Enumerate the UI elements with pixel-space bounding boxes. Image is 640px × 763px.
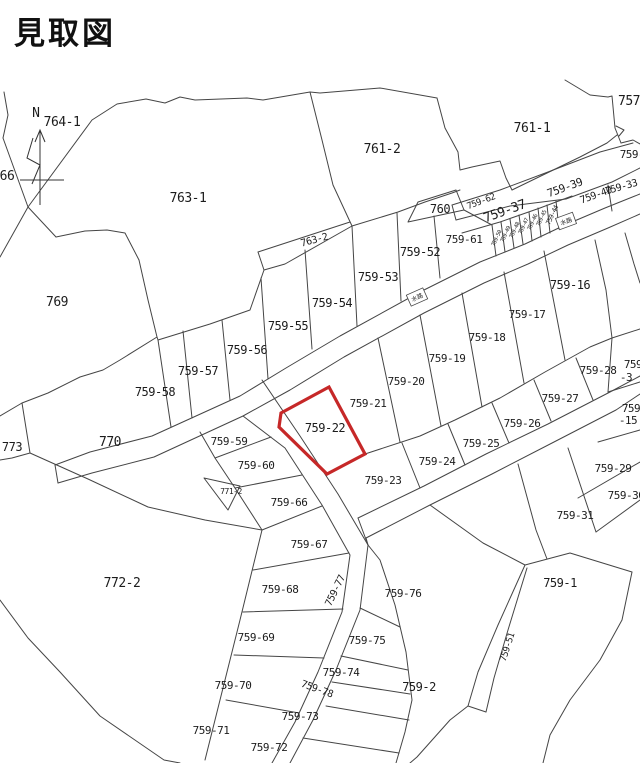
- boundary-line: [612, 329, 640, 338]
- parcel-label-769: 769: [46, 295, 68, 310]
- parcel-label--15: -15: [619, 414, 637, 427]
- boundary-line: [0, 453, 30, 460]
- parcel-label-761-2: 761-2: [364, 142, 401, 157]
- parcel-label-759-56: 759-56: [227, 343, 268, 357]
- cadastral-sketch-map: 見取図 N764-166763-1761-2761-1757759-4759-3…: [0, 0, 640, 763]
- parcel-label-759-66: 759-66: [271, 496, 308, 509]
- boundary-line: [437, 98, 512, 190]
- parcel-label-771-2: 771-2: [220, 487, 242, 496]
- parcel-label-759-59: 759-59: [211, 435, 248, 448]
- parcel-label-759-16: 759-16: [550, 278, 591, 292]
- parcel-label-759-52: 759-52: [400, 245, 441, 259]
- boundary-line: [598, 430, 640, 442]
- boundary-line: [253, 553, 349, 570]
- boundary-line: [262, 380, 368, 763]
- parcel-label-759-33: 759-33: [604, 178, 639, 198]
- parcel-label-759-51: 759-51: [499, 632, 518, 663]
- parcel-label-66: 66: [0, 169, 14, 184]
- boundary-line: [378, 338, 400, 442]
- boundary-line: [0, 600, 180, 763]
- boundary-line: [3, 138, 56, 237]
- parcel-label-759-25: 759-25: [463, 437, 500, 450]
- parcel-label-759-17: 759-17: [509, 308, 546, 321]
- parcel-label-759-30: 759-30: [608, 489, 640, 502]
- parcel-label-759-77: 759-77: [324, 573, 349, 608]
- parcel-label-759-76: 759-76: [385, 587, 422, 600]
- boundary-line: [234, 655, 324, 658]
- boundary-line: [55, 465, 58, 483]
- boundary-line: [158, 340, 171, 427]
- boundary-line: [243, 609, 343, 612]
- boundary-line: [22, 403, 30, 453]
- parcel-label-759-73: 759-73: [282, 710, 319, 723]
- parcel-label-759-19: 759-19: [429, 352, 466, 365]
- boundary-line: [368, 545, 412, 763]
- boundary-line: [525, 553, 632, 572]
- parcel-label-763-1: 763-1: [170, 191, 207, 206]
- parcel-label-759-27: 759-27: [542, 392, 579, 405]
- boundary-line: [504, 272, 524, 383]
- parcel-label-772-2: 772-2: [104, 576, 141, 591]
- parcel-label-759-72: 759-72: [251, 741, 288, 754]
- boundary-line: [235, 475, 302, 488]
- parcel-label-759-4: 759-4: [620, 148, 640, 161]
- map-canvas: N764-166763-1761-2761-1757759-4759-39759…: [0, 0, 640, 763]
- boundary-line: [518, 464, 547, 559]
- boundary-line: [544, 251, 565, 360]
- parcel-label-760: 760: [430, 202, 450, 216]
- parcel-label-759-2: 759-2: [402, 680, 436, 694]
- parcel-label-759-61: 759-61: [446, 233, 483, 246]
- parcel-label-759-26: 759-26: [504, 417, 541, 430]
- parcel-label-759-69: 759-69: [238, 631, 275, 644]
- boundary-line: [258, 252, 264, 270]
- boundary-line: [360, 608, 400, 627]
- boundary-line: [410, 565, 525, 763]
- boundary-line: [352, 226, 357, 326]
- north-label: N: [32, 106, 40, 121]
- parcel-label-759-24: 759-24: [419, 455, 457, 468]
- boundary-line: [596, 500, 640, 532]
- boundary-line: [332, 682, 410, 694]
- parcel-label-759-1: 759-1: [543, 576, 577, 590]
- boundary-line: [420, 315, 441, 426]
- parcel-label-759-21: 759-21: [350, 397, 387, 410]
- parcel-label-759-74: 759-74: [323, 666, 361, 679]
- parcel-label-761-1: 761-1: [514, 121, 551, 136]
- parcel-label-773: 773: [2, 440, 22, 454]
- parcel-label-764-1: 764-1: [44, 115, 81, 130]
- road-marker: 水路: [555, 212, 576, 229]
- parcel-label-759-23: 759-23: [365, 474, 402, 487]
- parcel-label-757: 757: [618, 94, 640, 109]
- parcel-label-759-71: 759-71: [193, 724, 230, 737]
- boundary-line: [402, 443, 420, 488]
- boundary-line: [430, 505, 525, 565]
- boundary-line: [303, 738, 399, 753]
- boundary-line: [0, 337, 157, 416]
- parcel-label-770: 770: [99, 435, 121, 450]
- parcel-label-759: 759: [624, 358, 640, 371]
- boundary-line: [310, 92, 352, 226]
- parcel-label-759-67: 759-67: [291, 538, 328, 551]
- boundary-line: [595, 240, 612, 338]
- parcel-label-759-22: 759-22: [305, 421, 346, 435]
- boundary-line: [3, 92, 8, 138]
- parcel-label-759-29: 759-29: [595, 462, 632, 475]
- parcel-label-759-31: 759-31: [557, 509, 594, 522]
- parcel-label-759-75: 759-75: [349, 634, 386, 647]
- boundary-line: [158, 190, 460, 340]
- parcel-label--3: -3: [620, 371, 632, 384]
- page-title: 見取図: [14, 8, 116, 53]
- boundary-line: [565, 80, 621, 143]
- parcel-label-759-54: 759-54: [312, 296, 353, 310]
- parcel-label-759-28: 759-28: [580, 364, 617, 377]
- boundary-line: [326, 706, 409, 720]
- parcel-label-759-60: 759-60: [238, 459, 275, 472]
- parcel-label-759-70: 759-70: [215, 679, 252, 692]
- boundary-line: [0, 88, 437, 257]
- boundary-line: [468, 706, 486, 712]
- north-arrow-icon: [27, 138, 40, 184]
- road-marker: 水路: [406, 288, 427, 306]
- parcel-label-759-20: 759-20: [388, 375, 425, 388]
- boundary-line: [462, 293, 482, 407]
- boundary-line: [222, 320, 230, 400]
- parcel-label-759-18: 759-18: [469, 331, 506, 344]
- parcel-label-759-55: 759-55: [268, 319, 309, 333]
- parcel-label-759-53: 759-53: [358, 270, 399, 284]
- parcel-label-759-68: 759-68: [262, 583, 299, 596]
- boundary-line: [262, 506, 322, 530]
- boundary-line: [56, 230, 139, 260]
- boundary-line: [543, 572, 632, 763]
- parcel-label-759-58: 759-58: [135, 385, 176, 399]
- parcel-label-759-57: 759-57: [178, 364, 219, 378]
- parcel-label-759-78: 759-78: [299, 679, 334, 701]
- boundary-line: [625, 233, 640, 283]
- boundary-line: [139, 260, 158, 340]
